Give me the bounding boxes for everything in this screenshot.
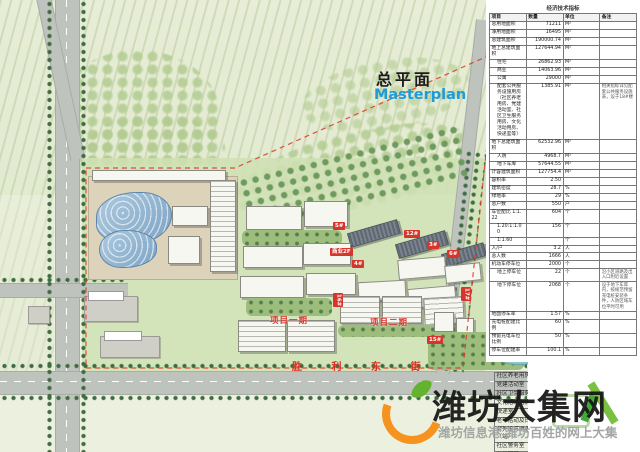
indicator-row: 总人数1666人 [490, 253, 637, 261]
indicator-row: 公寓29000M² [490, 75, 637, 83]
building-number-chip: 3# [427, 241, 439, 249]
indicator-row: 地下车库57644.55M² [490, 161, 637, 169]
building-number-chip: 4# [352, 260, 364, 268]
plan-title-en: Masterplan [374, 87, 466, 103]
indicator-header-row: 项目数量单位备注 [490, 14, 637, 22]
building-number-chip: 15# [427, 336, 443, 344]
building-number-chip: 商业2F [330, 248, 353, 256]
building-number-chip: 17# [461, 287, 471, 301]
building-number-chip: 6# [447, 250, 459, 258]
indicator-row: 1.20:1:1.00156个 [490, 223, 637, 237]
indicator-row: 净用地面积16495M² [490, 29, 637, 37]
building-number-chip: 16# [333, 293, 343, 307]
indicator-row: 计容建筑面积127754.4M² [490, 169, 637, 177]
indicator-row: 预留充电车位比例50% [490, 333, 637, 347]
watermark: 潍坊大集网 潍坊信息港 潍坊百姓的网上大集 [380, 378, 640, 448]
data-panel: 经济技术指标 项目数量单位备注总用地面积71211M²净用地面积16495M²总… [486, 0, 640, 362]
phase2-label: 项目二期 [370, 316, 408, 328]
indicator-row: 地下总建筑面积62532.96M² [490, 139, 637, 153]
indicator-row: 绿地率29% [490, 193, 637, 201]
watermark-slogan: 潍坊信息港 潍坊百姓的网上大集 [438, 422, 617, 441]
indicator-row: 停车位配建率100.1% [490, 347, 637, 355]
indicator-row: 机动车停车位2000个 [490, 261, 637, 269]
indicator-row: 充电桩配建比例60% [490, 319, 637, 333]
indicator-row: 1:1.60个 [490, 237, 637, 245]
building-number-chip: 12# [404, 230, 420, 238]
indicator-row: 总户数550户 [490, 201, 637, 209]
indicator-table: 经济技术指标 项目数量单位备注总用地面积71211M²净用地面积16495M²总… [489, 3, 637, 356]
street-name-shengli-east: 胜 利 东 街 [292, 358, 433, 373]
indicator-row: 车位配比 1:1.22604个 [490, 209, 637, 223]
indicator-row: 地下停车位2068个设于地下车库内，按规范预留充电桩安装条件，人防区域车位平时可… [490, 282, 637, 312]
indicator-row: 总用地面积71211M² [490, 21, 637, 29]
indicator-row: 总建筑面积190000.74M² [490, 37, 637, 45]
indicator-row: 地面停车率1.57% [490, 311, 637, 319]
indicator-row: 人防4968.7M² [490, 153, 637, 161]
indicator-row: 地上停车位22个沿小区道路及出入口附近设置 [490, 269, 637, 282]
masterplan-page: 5#12#3#6#商业2F4#16#17#15# 项目一期 项目二期 胜 利 东… [0, 0, 640, 452]
indicator-row: 住宅26862.93M² [490, 59, 637, 67]
indicator-row: 商业14063.96M² [490, 67, 637, 75]
indicator-row: 配套公共服务设施用房（社区养老用房、党建活动室、社区卫生服务用房、文化活动用房、… [490, 83, 637, 139]
indicator-row: 建筑密度28.7% [490, 185, 637, 193]
indicator-row: 容积率2.50 [490, 177, 637, 185]
phase1-label: 项目一期 [270, 314, 308, 326]
indicator-row: 地上总建筑面积127644.94M² [490, 45, 637, 59]
building-number-chip: 5# [333, 222, 345, 230]
indicator-table-caption: 经济技术指标 [489, 3, 637, 13]
indicator-row: 人/户3.2人 [490, 245, 637, 253]
